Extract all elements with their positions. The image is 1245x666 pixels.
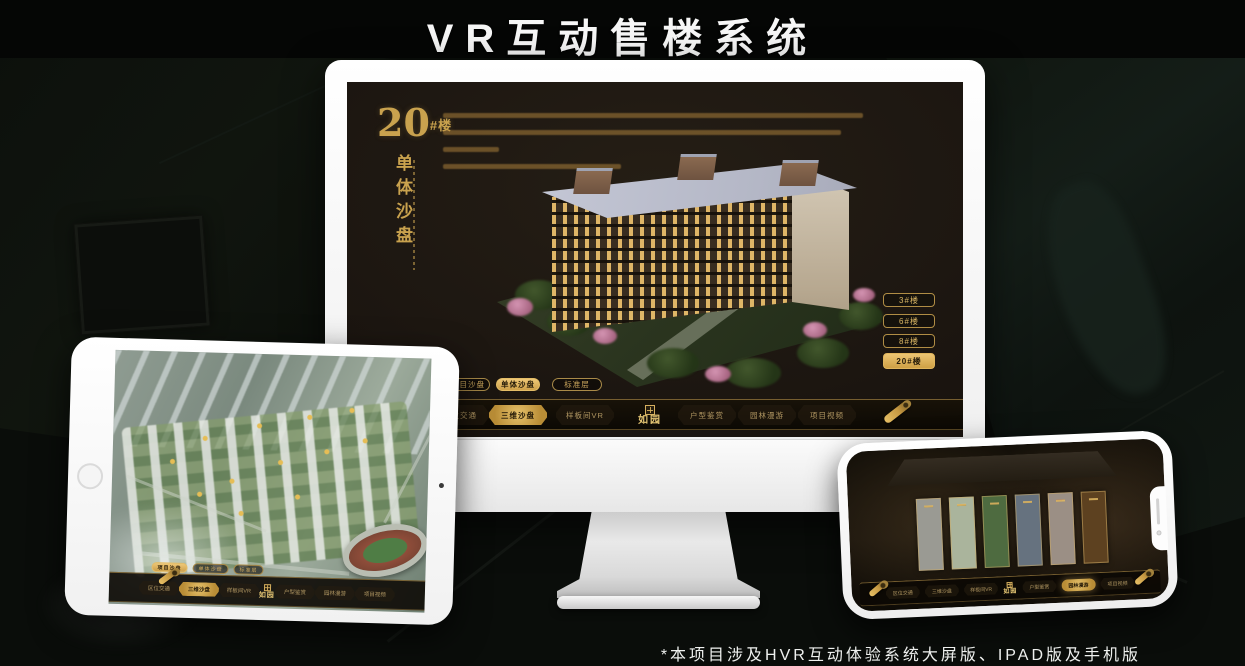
brand-logo-text: 如园 [1003, 588, 1017, 595]
roof-tower [677, 154, 717, 180]
brand-logo[interactable]: 如园 [630, 402, 670, 429]
background-road-line [159, 78, 341, 164]
tab-single-sandtable[interactable]: 单体沙盘 [192, 563, 228, 574]
background-plaque [74, 216, 209, 335]
floor-button-20-active[interactable]: 20#楼 [883, 353, 935, 369]
scroll-icon[interactable] [883, 400, 912, 425]
nav-item-project-video[interactable]: 项目视频 [798, 405, 856, 425]
nav-item-unit-plans[interactable]: 户型鉴赏 [1022, 580, 1056, 593]
nav-item-unit-plans[interactable]: 户型鉴赏 [275, 584, 315, 599]
tablet-screen: 项目沙盘 单体沙盘 标准层 区位交通 三维沙盘 样板间VR 如园 户型鉴赏 园林… [109, 350, 432, 613]
nav-item-3d-sandtable-active[interactable]: 三维沙盘 [179, 582, 219, 597]
nav-item-3d-sandtable[interactable]: 三维沙盘 [925, 584, 959, 597]
nav-item-showflat-vr[interactable]: 样板间VR [964, 582, 998, 595]
intro-text-blurred [443, 130, 841, 135]
brand-logo-text: 如园 [638, 416, 662, 426]
flower-tree [593, 328, 617, 344]
floor-button-6[interactable]: 6#楼 [883, 314, 935, 328]
flower-tree [803, 322, 827, 338]
seal-icon [263, 584, 270, 591]
section-title-vertical: 单体沙盘 [390, 154, 415, 250]
scene-panel-gate[interactable] [1048, 492, 1076, 565]
nav-item-showflat-vr[interactable]: 样板间VR [219, 583, 259, 598]
footnote-text: *本项目涉及HVR互动体验系统大屏版、IPAD版及手机版 [661, 641, 1141, 665]
nav-item-project-video[interactable]: 项目视频 [1100, 577, 1134, 590]
phone-bottom-nav: 区位交通 三维沙盘 样板间VR 如园 户型鉴赏 园林漫游 项目视频 [859, 569, 1161, 606]
nav-item-garden-roam-active[interactable]: 园林漫游 [1061, 578, 1095, 591]
tablet-mockup: 项目沙盘 单体沙盘 标准层 区位交通 三维沙盘 样板间VR 如园 户型鉴赏 园林… [64, 337, 460, 626]
nav-item-unit-plans[interactable]: 户型鉴赏 [678, 405, 736, 425]
poster-canvas: VR互动售楼系统 20#楼 单体沙盘 [0, 0, 1245, 666]
nav-item-project-video[interactable]: 项目视频 [355, 587, 395, 602]
nav-item-garden-roam[interactable]: 园林漫游 [738, 405, 796, 425]
brand-logo[interactable]: 如园 [259, 583, 275, 598]
camera-dot-icon [439, 483, 444, 488]
tree-cluster [647, 348, 699, 378]
building-number: 20 [377, 100, 430, 145]
tree-cluster [797, 338, 849, 368]
phone-screen: 区位交通 三维沙盘 样板间VR 如园 户型鉴赏 园林漫游 项目视频 [846, 438, 1170, 612]
tab-standard-floor[interactable]: 标准层 [552, 378, 602, 391]
scene-panel-interior[interactable] [949, 496, 977, 569]
building-number-title: 20#楼 [377, 104, 452, 142]
roof-tower [779, 160, 819, 186]
intro-text-blurred [443, 113, 863, 118]
floor-button-8[interactable]: 8#楼 [883, 334, 935, 348]
nav-item-location-traffic[interactable]: 区位交通 [886, 586, 920, 599]
scene-panel-study[interactable] [1081, 491, 1109, 564]
background-river [1025, 171, 1185, 409]
roof-tower [573, 168, 613, 194]
speaker-icon [1156, 498, 1160, 524]
tab-single-sandtable-active[interactable]: 单体沙盘 [496, 378, 540, 391]
headline-caption-bar [413, 160, 415, 270]
scene-panel-facade[interactable] [1015, 494, 1043, 567]
flower-tree [507, 298, 533, 316]
flower-tree [705, 366, 731, 382]
page-title: VR互动售楼系统 [0, 6, 1245, 64]
interior-beam [886, 450, 1117, 486]
monitor-stand-base [557, 596, 760, 609]
tab-standard-floor[interactable]: 标准层 [233, 564, 263, 575]
nav-item-3d-sandtable-active[interactable]: 三维沙盘 [489, 405, 547, 425]
building-3d-render[interactable] [497, 152, 897, 402]
scene-panel-garden[interactable] [982, 495, 1010, 568]
floor-button-3[interactable]: 3#楼 [883, 293, 935, 307]
monitor-stand-neck [557, 512, 760, 598]
scene-panel-courtyard[interactable] [916, 498, 944, 571]
camera-dot-icon [1156, 530, 1161, 535]
phone-notch [1149, 486, 1168, 551]
intro-text-blurred [443, 147, 499, 152]
nav-item-showflat-vr[interactable]: 样板间VR [556, 405, 614, 425]
home-button[interactable] [77, 463, 104, 490]
brand-logo-text: 如园 [259, 591, 275, 598]
nav-item-garden-roam[interactable]: 园林漫游 [315, 586, 355, 601]
phone-mockup: 区位交通 三维沙盘 样板间VR 如园 户型鉴赏 园林漫游 项目视频 [836, 430, 1178, 620]
flower-tree [853, 288, 875, 302]
tree-cluster [725, 358, 781, 388]
seal-icon [1007, 581, 1013, 587]
brand-logo[interactable]: 如园 [1003, 581, 1018, 595]
seal-icon [645, 405, 655, 415]
